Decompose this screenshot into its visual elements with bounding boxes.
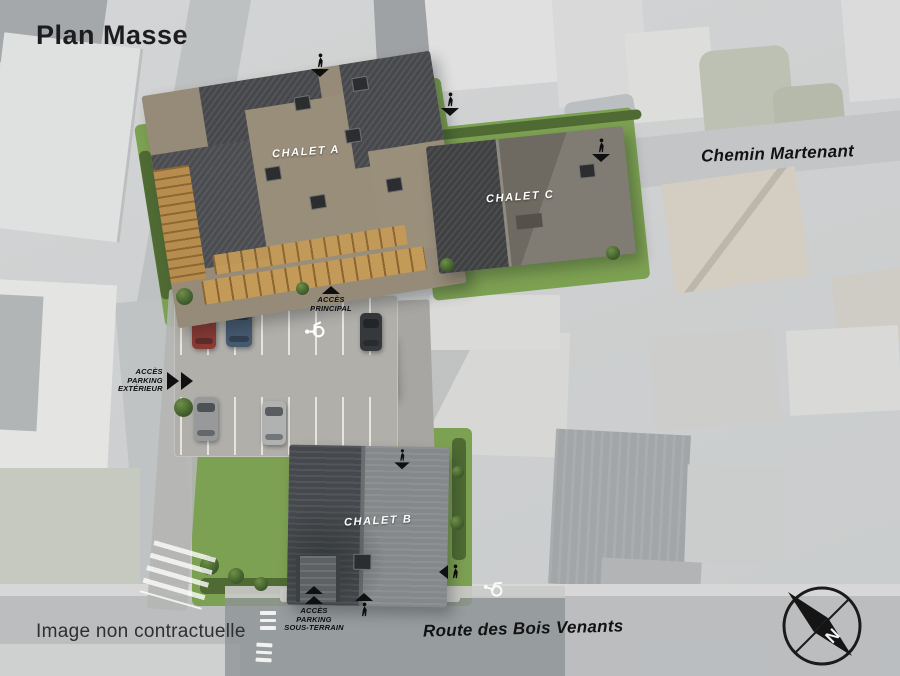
page-title: Plan Masse xyxy=(36,20,188,51)
pedestrian-access-north-2 xyxy=(441,92,459,116)
arrow-up-icon xyxy=(305,586,323,594)
access-principal-line2: PRINCIPAL xyxy=(300,305,362,313)
chimney xyxy=(351,76,369,92)
access-principal-label: ACCÈS PRINCIPAL xyxy=(300,286,362,313)
access-ext-line3: EXTÉRIEUR xyxy=(118,385,163,393)
arrow-right-icon xyxy=(181,372,193,390)
pedestrian-icon xyxy=(596,138,607,153)
pedestrian-icon xyxy=(397,449,406,462)
pedestrian-access-south xyxy=(355,593,373,617)
pedestrian-access-southeast xyxy=(439,564,461,579)
arrow-up-icon xyxy=(355,593,373,601)
hedge-chalet-b-east xyxy=(452,438,466,560)
arrow-down-icon xyxy=(394,462,409,469)
arrow-left-icon xyxy=(439,565,448,579)
pedestrian-access-center xyxy=(394,449,409,469)
arrow-down-icon xyxy=(311,69,329,77)
bush xyxy=(228,568,244,584)
chimney xyxy=(385,177,403,193)
chimney xyxy=(344,127,362,143)
bush xyxy=(452,466,464,478)
chimney xyxy=(293,95,311,111)
pedestrian-icon xyxy=(315,53,326,68)
bush xyxy=(606,246,620,260)
chimney xyxy=(353,554,371,570)
driveway-east xyxy=(393,299,434,455)
bush xyxy=(450,516,464,530)
pedestrian-access-north-1 xyxy=(311,53,329,77)
car-gray xyxy=(194,397,218,441)
road-dashes xyxy=(256,643,273,662)
bush xyxy=(254,577,268,591)
chimney xyxy=(264,165,282,181)
car-dark xyxy=(360,313,382,351)
disclaimer-text: Image non contractuelle xyxy=(36,621,246,643)
access-principal-line1: ACCÈS xyxy=(300,296,362,304)
arrow-right-icon xyxy=(167,372,179,390)
pedestrian-icon xyxy=(450,564,461,579)
chimney xyxy=(579,163,596,179)
pedestrian-icon xyxy=(445,92,456,107)
bush xyxy=(174,398,193,417)
access-st-line3: SOUS-TERRAIN xyxy=(281,624,347,632)
arrow-up-icon xyxy=(305,596,323,604)
road-dashes xyxy=(260,611,276,630)
bush xyxy=(440,258,454,272)
site-plan-image: ACCÈS PRINCIPAL ACCÈS PARKING EXTÉRIEUR … xyxy=(0,0,900,676)
car-silver xyxy=(262,401,286,445)
arrow-down-icon xyxy=(592,154,610,162)
pedestrian-icon xyxy=(359,602,370,617)
arrow-down-icon xyxy=(441,108,459,116)
compass-rose: N xyxy=(776,580,868,672)
bush xyxy=(176,288,193,305)
access-parking-exterieur-label: ACCÈS PARKING EXTÉRIEUR xyxy=(118,368,193,394)
access-ext-line1: ACCÈS xyxy=(118,368,163,376)
access-parking-sous-terrain-label: ACCÈS PARKING SOUS-TERRAIN xyxy=(281,586,347,633)
arrow-up-icon xyxy=(322,286,340,294)
access-st-line1: ACCÈS xyxy=(281,607,347,615)
pedestrian-access-east xyxy=(592,138,610,162)
handicap-icon xyxy=(304,319,325,340)
chimney xyxy=(309,194,327,210)
chalet-c-dormer xyxy=(516,213,543,230)
